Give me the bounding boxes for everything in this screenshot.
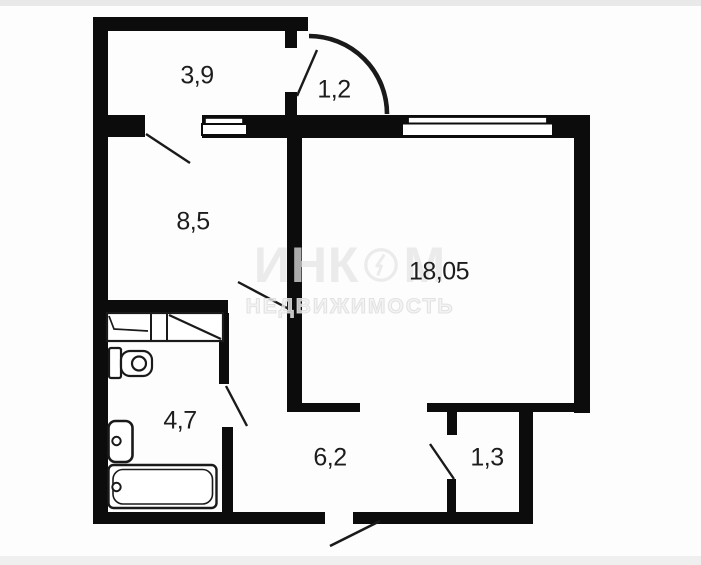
wall-outer-right (574, 115, 590, 413)
bathtub-drain (112, 483, 120, 491)
area-label-room-bathroom: 4,7 (163, 407, 196, 436)
window-living-lower-sash (402, 124, 553, 137)
wall-bathroom-top (108, 300, 228, 313)
sink-drain (112, 437, 120, 445)
wall-living-bottom-left (302, 403, 360, 412)
area-label-room-closet: 1,3 (470, 444, 503, 473)
wall-band-left-segment (108, 115, 145, 137)
wall-closet-left-stub (447, 412, 457, 435)
floor-plan-page: ИНК М НЕДВИЖИМОСТЬ 3,9 1,2 8,5 18,05 4,7… (0, 0, 701, 565)
wall-closet-left-lower (447, 479, 456, 513)
bathtub-outer (109, 465, 217, 508)
door-leaf-closet (430, 444, 454, 479)
wall-outer-left (93, 17, 108, 524)
door-leaf-vestibule (297, 50, 317, 96)
sink-icon (109, 421, 133, 462)
area-label-room-living: 18,05 (409, 258, 469, 287)
toilet-bowl-circle (132, 357, 146, 371)
wall-outer-top (93, 17, 308, 31)
bathtub-icon (109, 465, 217, 508)
area-label-room-hallway: 6,2 (313, 444, 346, 473)
area-label-room-top-left: 3,9 (180, 62, 213, 91)
area-label-room-vestibule: 1,2 (317, 76, 350, 105)
door-leaf-bathroom (226, 386, 247, 426)
toilet-tank (109, 348, 121, 378)
door-leaf-entrance (330, 521, 380, 546)
wardrobe-outline (107, 313, 223, 341)
wall-bathroom-right-lower (222, 427, 233, 513)
wall-stub-vestibule-upper (285, 31, 297, 48)
wall-kitchen-living-divider (287, 137, 302, 412)
wardrobe-icon (107, 313, 223, 341)
wall-outer-bottom-left (93, 512, 325, 524)
toilet-icon (109, 348, 152, 378)
door-leaf-top-room (146, 134, 190, 163)
wall-stub-vestibule-lower (285, 92, 297, 115)
window-small-lower-sash (202, 124, 247, 135)
area-label-room-kitchen: 8,5 (176, 208, 209, 237)
wall-living-bottom-right (427, 403, 590, 412)
door-leaf-kitchen (238, 282, 289, 309)
wall-closet-right (519, 412, 533, 513)
